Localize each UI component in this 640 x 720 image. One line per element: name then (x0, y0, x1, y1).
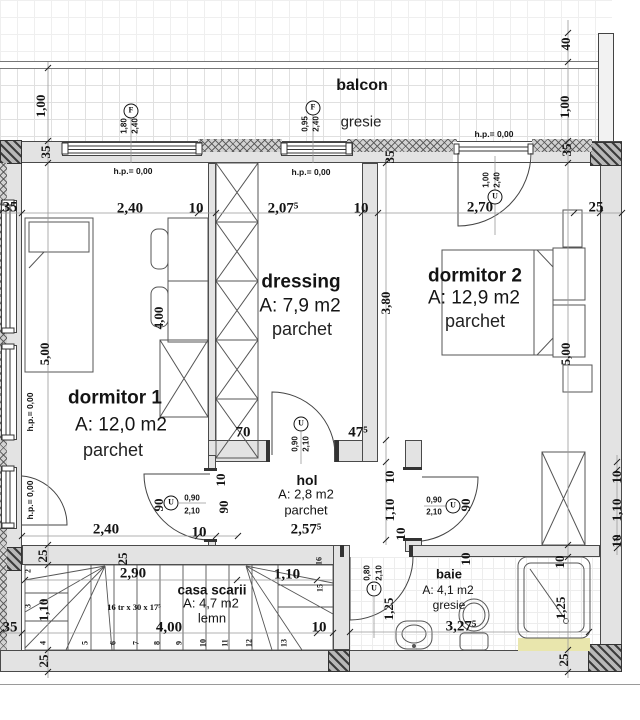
dim-d1-400: 4,00 (151, 307, 167, 330)
balcony-door-width: 1,00 (482, 172, 491, 188)
dim-hol-90a: 90 (151, 499, 167, 512)
dim-baie-125r: 1,25 (553, 597, 569, 620)
window-left-2 (1, 345, 17, 440)
window-2-box (281, 142, 353, 156)
dim-wall35-right: 35 (559, 144, 575, 157)
wall-bottom-exterior (0, 650, 622, 672)
pier-top-left (0, 140, 22, 164)
hol-name: hol (297, 473, 318, 487)
dormitor1-area: A: 12,0 m2 (75, 416, 167, 435)
hol-area: A: 2,8 m2 (278, 488, 334, 501)
baie-name: baie (436, 568, 462, 581)
dressing-finish: parchet (272, 320, 332, 338)
wall-dormitor1-dressing (208, 163, 216, 455)
tread-10: 10 (199, 639, 208, 647)
window1-width: 1,80 (120, 118, 129, 134)
window2-width: 0,95 (301, 116, 310, 132)
dim-stairs-290: 2,90 (120, 566, 146, 583)
dim-d1-240b: 2,40 (93, 522, 119, 539)
dim-top-35: 35 (3, 200, 18, 217)
dressing-door-symbol-u: U (294, 417, 309, 432)
tread-11: 11 (221, 639, 230, 647)
pier-top-right (590, 142, 622, 166)
wall-right-exterior (600, 141, 622, 672)
dressing-door-height: 2,10 (302, 436, 311, 452)
tread-16: 16 (315, 557, 324, 565)
dim-stairs-110: 1,10 (274, 567, 300, 584)
baie-door-height: 2,10 (375, 565, 384, 581)
stairs-spec: 16 tr x 30 x 17⁵ (107, 602, 161, 612)
window2-symbol-f: F (306, 101, 321, 116)
area-above-railing (0, 0, 612, 61)
dim-c390-110: 1,10 (382, 499, 398, 522)
dressing-area: A: 7,9 m2 (259, 297, 340, 316)
floor-plan: balcon gresie dormitor 1 A: 12,0 m2 parc… (0, 0, 640, 720)
tread-9: 9 (175, 641, 184, 645)
level-label-left2: h.p.= 0,00 (25, 481, 35, 520)
level-label-left1: h.p.= 0,00 (25, 393, 35, 432)
dim-stairs-10: 10 (312, 620, 327, 637)
hatch-top-band-1 (198, 139, 282, 152)
window2-height: 2,40 (312, 116, 321, 132)
pier-bottom-middle (328, 650, 350, 672)
wall-dormitor1-hol-a (208, 455, 216, 470)
dim-right-10b: 10 (609, 535, 625, 548)
dormitor2-door-height: 2,10 (426, 508, 442, 517)
dim-d1-10: 10 (192, 525, 207, 542)
dim-top-240: 2,40 (117, 201, 143, 218)
dim-top-10a: 10 (189, 201, 204, 218)
dormitor2-finish: parchet (445, 312, 505, 330)
dim-baie-10t: 10 (458, 553, 474, 566)
baie-door-width: 0,80 (363, 565, 372, 581)
dim-stairs-25t: 25 (35, 550, 51, 563)
dim-wall35-left: 35 (38, 146, 54, 159)
dim-stairs-400: 4,00 (156, 620, 182, 637)
tread-2: 2 (24, 569, 33, 573)
dim-top-2075: 2,07⁵ (268, 201, 299, 218)
level-label-win1: h.p.= 0,00 (114, 166, 153, 176)
dormitor1-name: dormitor 1 (68, 389, 162, 408)
dim-baie-10r: 10 (552, 556, 568, 569)
dim-d2-500: 5,00 (558, 343, 574, 366)
window-left-3 (1, 467, 17, 529)
baie-finish: gresie (433, 599, 466, 611)
highlight-strip (518, 638, 590, 651)
dressing-name: dressing (261, 273, 340, 292)
wall-stairs-top (22, 545, 343, 565)
dim-right-10a: 10 (609, 471, 625, 484)
baie-area: A: 4,1 m2 (422, 584, 473, 596)
dim-dressing-380: 3,80 (378, 292, 394, 315)
dim-hol-10l: 10 (213, 474, 229, 487)
wall-stairs-baie (333, 545, 350, 650)
casa-scarii-area: A: 4,7 m2 (183, 597, 239, 610)
window1-symbol-f: F (124, 104, 139, 119)
window1-height: 2,40 (131, 118, 140, 134)
baie-door-symbol-u: U (367, 582, 382, 597)
dressing-door-width: 0,90 (291, 436, 300, 452)
tread-12: 12 (245, 639, 254, 647)
dim-baie-3275: 3,27⁵ (446, 619, 477, 636)
dim-wall35-mid: 35 (382, 151, 398, 164)
casa-scarii-finish: lemn (198, 612, 226, 625)
wall-baie-top (410, 545, 600, 557)
dim-hol-2575: 2,57⁵ (291, 522, 322, 539)
hol-finish: parchet (284, 504, 327, 517)
dim-c390-10b: 10 (393, 528, 409, 541)
dim-hol-90c: 90 (458, 499, 474, 512)
window-left-1 (1, 200, 17, 333)
hatch-top-band-2 (347, 139, 457, 152)
tread-8: 8 (153, 641, 162, 645)
balcony-right-wall (598, 33, 614, 143)
dormitor1-door-width: 0,90 (184, 494, 200, 503)
dormitor2-name: dormitor 2 (428, 267, 522, 286)
balcony-finish: gresie (341, 115, 382, 130)
dim-d1-25: 25 (115, 553, 131, 566)
dim-baie-25: 25 (556, 654, 572, 667)
pier-bottom-right (588, 644, 622, 672)
tread-15: 15 (316, 584, 325, 592)
balcony-label: balcon (336, 78, 388, 94)
dim-parapet-40: 40 (558, 38, 574, 51)
balcony-door-height: 2,40 (493, 172, 502, 188)
balcony-door-gap (453, 142, 532, 162)
dim-top-25: 25 (589, 200, 604, 217)
level-label-win2: h.p.= 0,00 (292, 167, 331, 177)
tread-4: 4 (39, 641, 48, 645)
tread-13: 13 (280, 639, 289, 647)
level-label-balcdoor: h.p.= 0,00 (475, 129, 514, 139)
wall-dressing-hol-left (208, 440, 270, 462)
dim-top-10b: 10 (354, 201, 369, 218)
dim-dressing-475: 47⁵ (348, 425, 368, 442)
balcony-railing (0, 61, 612, 69)
dim-dressing-70: 70 (236, 425, 251, 442)
dim-right-110: 1,10 (609, 499, 625, 522)
dim-baie-125l: 1,25 (381, 598, 397, 621)
window-1-box (62, 142, 202, 156)
dim-stairs-35: 35 (3, 620, 18, 637)
dim-stairs-25b: 25 (36, 655, 52, 668)
dim-balcony-left: 1,00 (33, 95, 49, 118)
dim-d1-500: 5,00 (37, 343, 53, 366)
dim-balcony-right: 1,00 (557, 96, 573, 119)
dormitor2-area: A: 12,9 m2 (428, 289, 520, 308)
dim-hol-90b: 90 (216, 501, 232, 514)
wall-hol-dormitor2-a (405, 440, 422, 470)
dormitor2-door-width: 0,90 (426, 496, 442, 505)
tread-5: 5 (81, 641, 90, 645)
dim-stairs-l110: 1,10 (36, 599, 52, 622)
dormitor1-finish: parchet (83, 441, 143, 459)
tread-6: 6 (109, 641, 118, 645)
section-cut-line (0, 684, 640, 685)
tread-3: 3 (24, 604, 33, 608)
dim-c390-10a: 10 (382, 471, 398, 484)
dormitor1-door-height: 2,10 (184, 507, 200, 516)
dim-top-270: 2,70 (467, 200, 493, 217)
tread-7: 7 (132, 641, 141, 645)
